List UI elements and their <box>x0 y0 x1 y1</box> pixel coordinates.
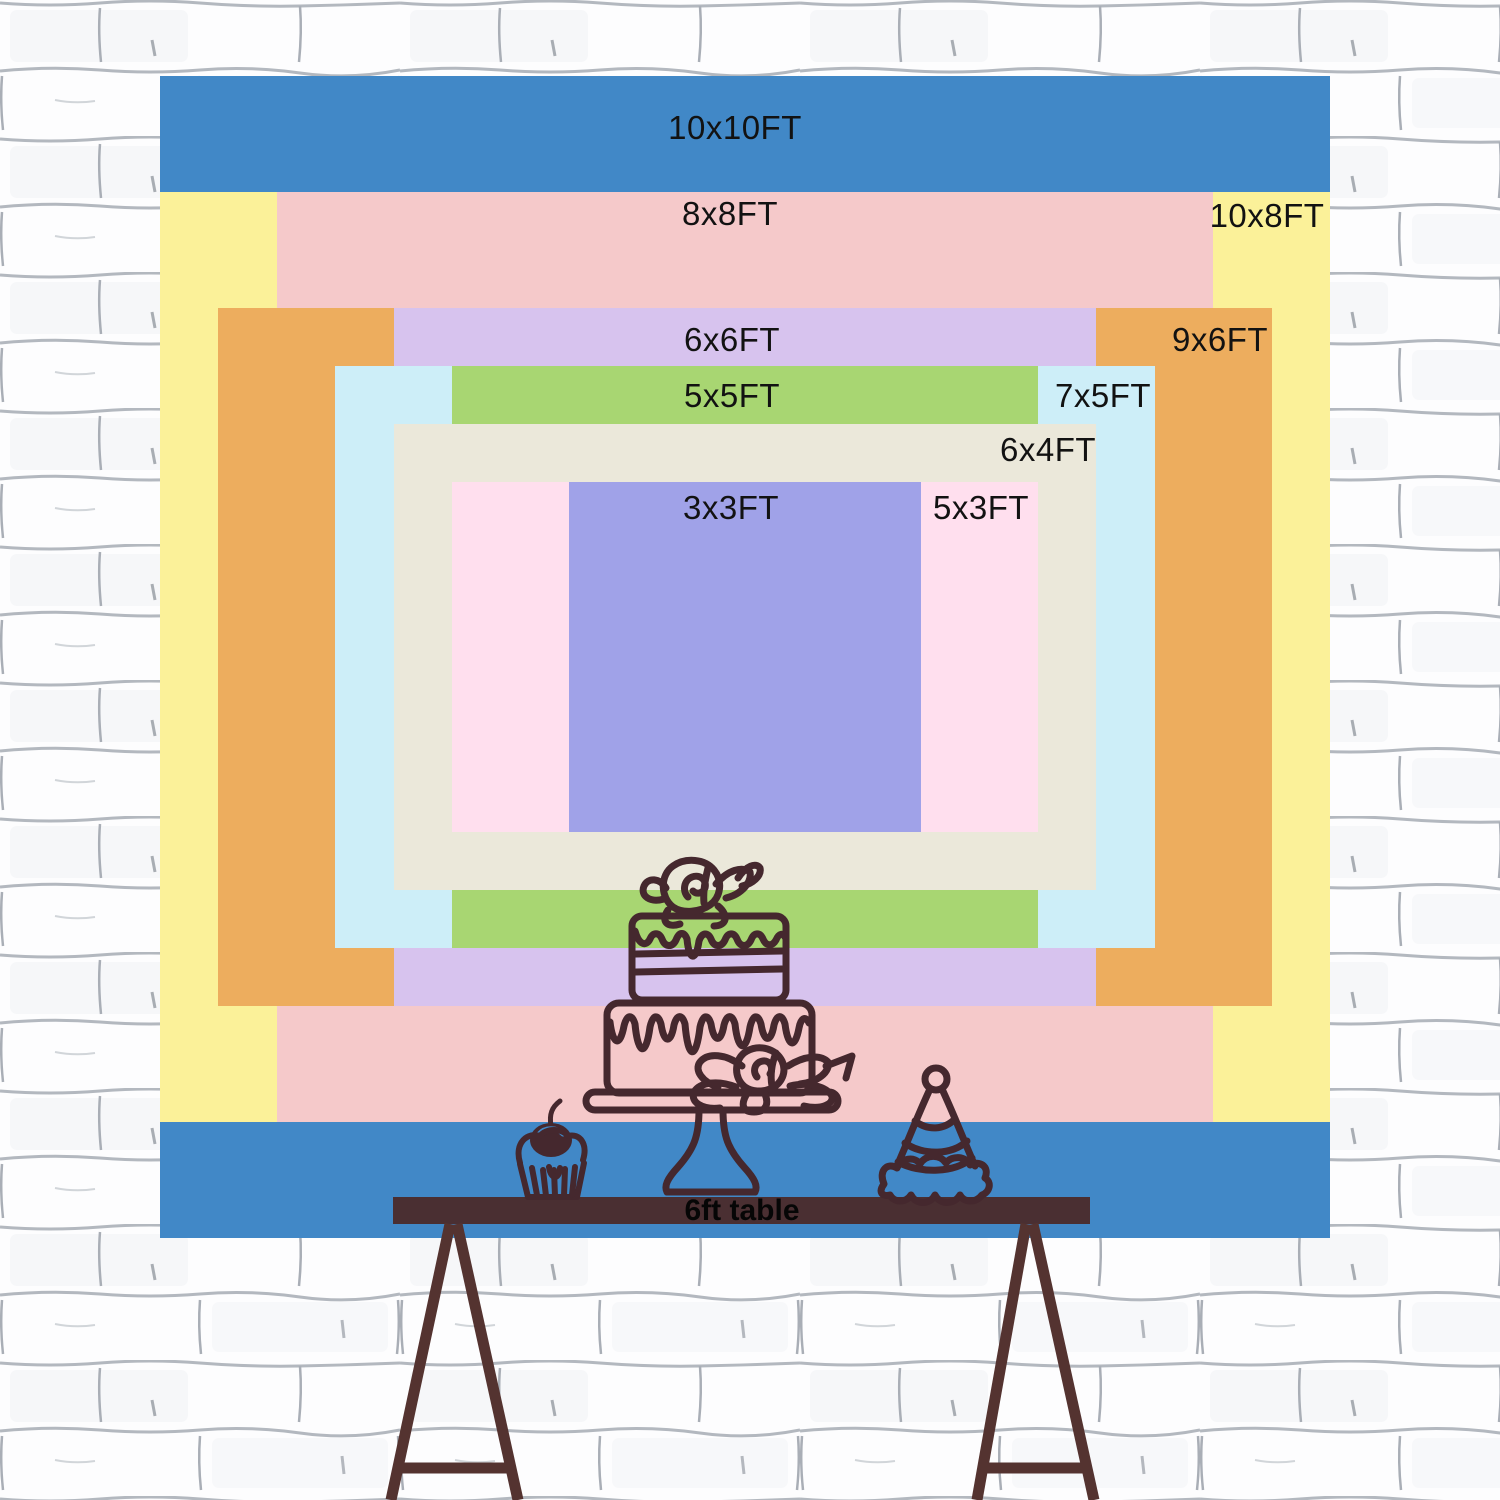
size-label-9x6ft: 9x6FT <box>1172 321 1268 359</box>
size-label-5x3ft: 5x3FT <box>933 489 1029 527</box>
size-label-3x3ft: 3x3FT <box>683 489 779 527</box>
size-label-10x8ft: 10x8FT <box>1210 197 1325 235</box>
party-hat-icon <box>881 1068 989 1203</box>
size-label-6x6ft: 6x6FT <box>684 321 780 359</box>
table-length-label: 6ft table <box>684 1194 799 1228</box>
table-legs <box>391 1224 1094 1500</box>
backdrop-size-chart: 10x10FT 10x8FT 8x8FT 9x6FT 6x6FT 7x5FT 5… <box>0 0 1500 1500</box>
size-label-7x5ft: 7x5FT <box>1055 377 1151 415</box>
birthday-cake-icon <box>586 860 852 1192</box>
size-label-10x10ft: 10x10FT <box>668 109 802 147</box>
size-label-8x8ft: 8x8FT <box>682 195 778 233</box>
size-label-5x5ft: 5x5FT <box>684 377 780 415</box>
cupcake-icon <box>519 1101 585 1197</box>
size-label-6x4ft: 6x4FT <box>1000 431 1096 469</box>
